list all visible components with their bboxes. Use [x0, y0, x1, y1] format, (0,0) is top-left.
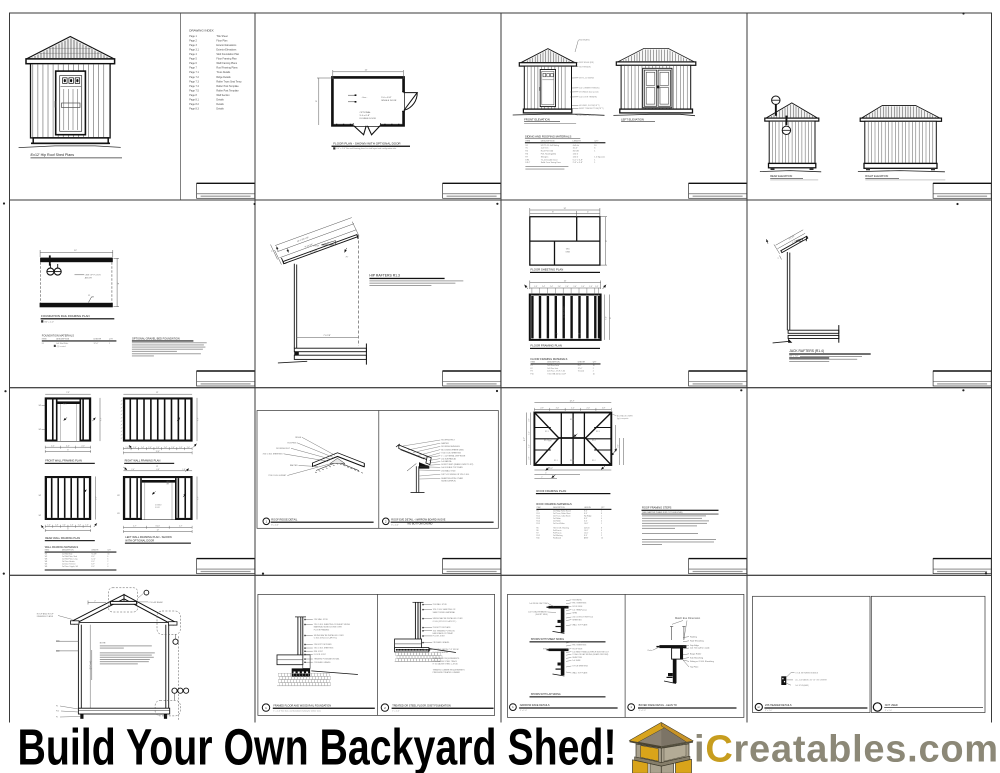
svg-text:DESCRIPTION: DESCRIPTION [62, 550, 74, 552]
svg-text:Page 8.1: Page 8.1 [189, 99, 199, 102]
svg-text:1'-5": 1'-5" [528, 431, 530, 434]
svg-text:2'-9": 2'-9" [540, 408, 544, 410]
svg-text:EXISTING EARTH 2"-8" FROM: EXISTING EARTH 2"-8" FROM [433, 648, 459, 651]
svg-text:REAR WALL FRAMING PLAN: REAR WALL FRAMING PLAN [45, 536, 80, 540]
svg-text:RIDGE(R8): RIDGE(R8) [572, 600, 582, 602]
svg-text:NOTE:: NOTE: [100, 643, 107, 645]
svg-text:1'-4": 1'-4" [126, 447, 130, 449]
svg-text:1'-4": 1'-4" [78, 525, 82, 527]
svg-text:ITEM: ITEM [536, 507, 541, 509]
svg-text:Exterior Elevations: Exterior Elevations [216, 48, 237, 51]
svg-text:2X4 WALL STUD: 2X4 WALL STUD [314, 618, 329, 621]
svg-text:7/16 TREATED PLYWOOD: 7/16 TREATED PLYWOOD [433, 629, 456, 632]
svg-text:1x4 DOOR TRIM(T8): 1x4 DOOR TRIM(T8) [579, 97, 597, 99]
svg-text:2'-0": 2'-0" [81, 445, 85, 447]
svg-text:3'-5 1/2": 3'-5 1/2" [788, 235, 795, 240]
svg-text:Page 7.3: Page 7.3 [189, 80, 199, 83]
svg-text:2x6 Rafter: 2x6 Rafter [553, 517, 561, 520]
svg-text:SOFFIT VENT (WHEN DOWN TO FIT): SOFFIT VENT (WHEN DOWN TO FIT) [441, 464, 473, 466]
svg-text:1x4 SHIM: 1x4 SHIM [572, 660, 580, 662]
svg-text:Shingles: Shingles [541, 156, 549, 158]
svg-text:Exterior Elevations: Exterior Elevations [216, 44, 237, 47]
svg-text:T5: T5 [525, 148, 528, 150]
svg-text:2'-7": 2'-7" [179, 526, 183, 528]
svg-text:Page 6: Page 6 [189, 62, 197, 65]
svg-text:2'-4": 2'-4" [131, 469, 135, 471]
svg-text:8'-7": 8'-7" [524, 437, 526, 441]
svg-text:1.5 Squares: 1.5 Squares [594, 156, 605, 158]
svg-text:7'-9": 7'-9" [66, 392, 70, 394]
svg-text:FLOOR PLAN - SHOWN WITH OPTION: FLOOR PLAN - SHOWN WITH OPTIONAL DOOR [333, 141, 401, 145]
svg-text:Roof Framing Plans: Roof Framing Plans [216, 67, 238, 70]
svg-text:1x4 RIDGE CAP TRIM: 1x4 RIDGE CAP TRIM [529, 602, 548, 605]
svg-text:QTY: QTY [594, 140, 599, 142]
svg-text:75°: 75° [346, 257, 349, 259]
svg-text:RIDGE(R8): RIDGE(R8) [572, 642, 582, 644]
svg-text:2x4 SUB FASCIA: 2x4 SUB FASCIA [441, 457, 456, 460]
svg-text:HIP RAFTERS R1.3: HIP RAFTERS R1.3 [369, 273, 400, 277]
svg-text:1'-4": 1'-4" [581, 286, 585, 288]
svg-text:W2: W2 [117, 495, 120, 497]
svg-text:4x8 sht: 4x8 sht [573, 144, 580, 147]
svg-text:8': 8' [610, 317, 612, 319]
svg-text:Top Plate: Top Plate [690, 666, 699, 669]
svg-text:Title Sheet: Title Sheet [216, 35, 228, 38]
svg-text:Felt Fascia: Felt Fascia [553, 529, 561, 532]
svg-text:2'-7": 2'-7" [133, 526, 137, 528]
svg-text:2'-2": 2'-2" [617, 444, 619, 447]
svg-text:1'-4": 1'-4" [542, 286, 546, 288]
svg-text:8': 8' [118, 282, 120, 284]
svg-text:1'-8": 1'-8" [182, 469, 186, 471]
svg-text:RAFTER: RAFTER [441, 442, 449, 445]
svg-text:1: 1 [512, 705, 514, 709]
svg-text:CRUSHED GRAVEL: CRUSHED GRAVEL [433, 641, 450, 644]
svg-text:3" = 1'-0": 3" = 1'-0" [520, 710, 528, 712]
svg-text:120 sf: 120 sf [573, 156, 579, 158]
svg-text:Roof Sheathing: Roof Sheathing [690, 640, 704, 643]
svg-text:GUTTER(DR): GUTTER(DR) [579, 67, 591, 69]
svg-text:2X4 WALL STUD: 2X4 WALL STUD [433, 603, 448, 606]
svg-text:O.S.B. (STUCCO LAP ETC.): O.S.B. (STUCCO LAP ETC.) [433, 620, 457, 623]
svg-text:1'-4": 1'-4" [164, 447, 168, 449]
svg-text:iCreatables.com: iCreatables.com [694, 729, 999, 771]
svg-text:1: 1 [265, 706, 267, 710]
svg-text:Roofing: Roofing [690, 636, 697, 638]
svg-text:Floor Framing Plan: Floor Framing Plan [216, 58, 237, 61]
svg-text:4'-0": 4'-0" [66, 445, 70, 447]
svg-text:Solid Core Swing Door: Solid Core Swing Door [541, 162, 562, 164]
svg-text:Truss Details: Truss Details [216, 71, 231, 74]
svg-text:HOLDER, DOOR(S 8"T): HOLDER, DOOR(S 8"T) [579, 105, 600, 107]
svg-text:TREATED OR STEEL FLOOR JOIST F: TREATED OR STEEL FLOOR JOIST FOUNDATION [392, 704, 451, 707]
svg-text:FLOOR FRAMING: FLOOR FRAMING [433, 651, 449, 654]
svg-text:120 sf: 120 sf [573, 154, 579, 156]
svg-text:1: 1 [594, 159, 596, 161]
svg-text:2x4 Door Trimmer: 2x4 Door Trimmer [62, 563, 76, 566]
svg-text:SKIRT TRIM BOTTOM(T8"T): SKIRT TRIM BOTTOM(T8"T) [579, 108, 604, 110]
svg-text:F1: F1 [42, 343, 44, 345]
svg-text:F1: F1 [88, 295, 90, 297]
svg-text:FOUNDATION RAIL FRAMING PLAN: FOUNDATION RAIL FRAMING PLAN [41, 314, 90, 318]
svg-text:S1: S1 [525, 145, 528, 147]
svg-text:1': 1' [778, 258, 780, 260]
svg-text:PRESSURE TREATED LUMBER: PRESSURE TREATED LUMBER [433, 671, 461, 674]
svg-text:2x6 Door Header: 2x6 Door Header [62, 560, 75, 563]
svg-text:Details: Details [216, 99, 224, 102]
svg-text:1'-4": 1'-4" [156, 447, 160, 449]
svg-text:6: 6 [594, 148, 596, 150]
svg-text:FLOOR FRAMING PLAN: FLOOR FRAMING PLAN [531, 344, 562, 348]
svg-text:SHIM: SHIM [543, 649, 548, 651]
svg-text:2'-2": 2'-2" [571, 408, 575, 410]
svg-text:(2) treated: (2) treated [57, 345, 66, 348]
svg-text:1'-4": 1'-4" [148, 447, 152, 449]
svg-text:ROOF FRAMING STEPS: ROOF FRAMING STEPS [642, 506, 672, 510]
svg-text:2x6 Floor Joist: 2x6 Floor Joist [547, 364, 559, 367]
svg-text:SHIM TRIM: SHIM TRIM [572, 657, 582, 659]
svg-text:7/16 O.S.B. Sheeting: 7/16 O.S.B. Sheeting [553, 526, 569, 529]
svg-text:ROOF FRAMING MATERIALS: ROOF FRAMING MATERIALS [536, 502, 572, 506]
svg-text:1x4 TRIM(Fascia): 1x4 TRIM(Fascia) [572, 609, 587, 611]
svg-text:FLOOR FRAMING: FLOOR FRAMING [314, 628, 330, 631]
svg-text:Page 7.4: Page 7.4 [189, 85, 199, 88]
svg-text:1'-4": 1'-4" [70, 525, 74, 527]
svg-text:NARROW RAKE DETAILS: NARROW RAKE DETAILS [520, 704, 550, 707]
svg-text:4x6 Foun. 4 S.R. T-60: 4x6 Foun. 4 S.R. T-60 [547, 371, 565, 373]
svg-text:4': 4' [587, 211, 589, 213]
svg-text:12': 12' [365, 70, 368, 72]
svg-text:REAR ELEVATION: REAR ELEVATION [770, 174, 792, 178]
svg-text:1x4 TO4 ALTERNATING: 1x4 TO4 ALTERNATING [528, 610, 548, 613]
svg-text:W2: W2 [39, 405, 42, 407]
svg-text:RIDGE(4R5): RIDGE(4R5) [579, 40, 590, 42]
svg-text:ROOF RIDGE DETAIL: ROOF RIDGE DETAIL [271, 518, 298, 522]
svg-text:1'-4": 1'-4" [595, 286, 599, 288]
svg-text:LENGTH: LENGTH [94, 339, 102, 341]
svg-text:FRONT ELEVATION: FRONT ELEVATION [524, 118, 550, 122]
svg-text:2X4 BOTTOM PLATE: 2X4 BOTTOM PLATE [314, 643, 333, 646]
svg-text:F2: F2 [56, 706, 58, 708]
svg-text:DESCRIPTION: DESCRIPTION [56, 339, 70, 341]
svg-text:OPTIONAL: OPTIONAL [360, 111, 372, 114]
svg-text:4x8 sht: 4x8 sht [584, 526, 590, 529]
svg-text:DESCRIPTION: DESCRIPTION [553, 507, 565, 509]
svg-text:1" = 1'-0": 1" = 1'-0" [392, 710, 400, 712]
svg-text:MATERIAL SIDING DOWN OVER: MATERIAL SIDING DOWN OVER [314, 626, 343, 629]
svg-text:QTY: QTY [107, 550, 111, 552]
svg-text:7/16 O.S.B. SHEETING: 7/16 O.S.B. SHEETING [263, 453, 283, 455]
svg-text:3: 3 [336, 242, 337, 244]
svg-text:36"x36': 36"x36' [573, 151, 580, 153]
svg-text:SIDING AND ROOFING MATERIALS: SIDING AND ROOFING MATERIALS [525, 134, 572, 138]
svg-text:12: 12 [327, 243, 329, 245]
svg-text:Page 7: Page 7 [189, 67, 197, 70]
svg-text:2x6 Jack Rafter: 2x6 Jack Rafter [553, 522, 565, 525]
svg-text:ROOF SIDE: ROOF SIDE [572, 606, 583, 608]
svg-text:F10: F10 [56, 711, 59, 713]
svg-text:Ridge Details: Ridge Details [216, 76, 231, 79]
svg-text:12' RIM JOIST: 12' RIM JOIST [564, 305, 566, 318]
svg-text:2X4 BOTTOM PLATE: 2X4 BOTTOM PLATE [433, 626, 452, 629]
svg-text:4': 4' [545, 473, 547, 475]
svg-text:Page 2: Page 2 [189, 39, 197, 42]
svg-text:7/16 O.S.B. SHEETING: 7/16 O.S.B. SHEETING [314, 648, 334, 650]
svg-text:12': 12' [74, 250, 77, 252]
svg-text:2: 2 [385, 519, 387, 523]
svg-text:QTY: QTY [601, 507, 605, 509]
svg-text:12'-0": 12'-0" [578, 368, 583, 370]
svg-text:5'-0" x 6'-8": 5'-0" x 6'-8" [573, 159, 583, 161]
svg-text:W1: W1 [117, 513, 120, 515]
svg-text:W1: W1 [39, 429, 42, 431]
svg-text:Roof Felt 15lb: Roof Felt 15lb [541, 150, 554, 153]
svg-text:2X6 HEADER DETAILS: 2X6 HEADER DETAILS [765, 704, 792, 707]
svg-text:1'-4": 1'-4" [187, 447, 191, 449]
svg-text:TREATED LUMBER REQUIREMENTS: TREATED LUMBER REQUIREMENTS [433, 669, 466, 672]
svg-text:1: 1 [594, 162, 596, 164]
svg-text:FOUNDATION MATERIALS: FOUNDATION MATERIALS [42, 333, 74, 337]
svg-text:WITH OPTIONAL DOOR: WITH OPTIONAL DOOR [125, 538, 154, 542]
svg-text:R1.4: R1.4 [592, 440, 596, 442]
svg-text:Page 8: Page 8 [189, 94, 197, 97]
svg-text:1'-4": 1'-4" [558, 286, 562, 288]
svg-text:3/4" = 1'-0": 3/4" = 1'-0" [789, 356, 799, 358]
svg-text:WALL TOP PLATE: WALL TOP PLATE [572, 672, 588, 675]
svg-text:ROOFING FELT: ROOFING FELT [441, 440, 455, 442]
svg-text:8'-0": 8'-0" [578, 365, 582, 367]
svg-text:2'-9": 2'-9" [528, 418, 530, 421]
svg-text:BOXED RAKE DETAIL - LEAN TO: BOXED RAKE DETAIL - LEAN TO [639, 704, 677, 707]
svg-text:2x4 DOUBLE TOP PLATE: 2x4 DOUBLE TOP PLATE [441, 466, 463, 469]
svg-text:1'-4": 1'-4" [589, 286, 593, 288]
svg-text:Rafter Post Template: Rafter Post Template [216, 85, 239, 88]
svg-text:Sub Sheathing: Sub Sheathing [690, 656, 703, 659]
svg-text:12'-7": 12'-7" [570, 401, 575, 403]
svg-text:DOUBLE DOOR: DOUBLE DOOR [360, 118, 377, 120]
svg-text:Felt, Roofing(felt): Felt, Roofing(felt) [541, 153, 557, 156]
svg-text:2x4 Door Cripple, Sill: 2x4 Door Cripple, Sill [62, 565, 78, 568]
svg-text:ABOVE: ABOVE [85, 276, 93, 279]
svg-text:1: 1 [266, 519, 268, 523]
svg-text:FLOOR SHEETING PLAN: FLOOR SHEETING PLAN [531, 268, 564, 272]
svg-text:Page 7.1: Page 7.1 [189, 71, 199, 74]
svg-text:W1: W1 [39, 515, 42, 517]
svg-text:LINE OF FLOOR: LINE OF FLOOR [85, 275, 101, 277]
svg-text:WALL FRAMING MATERIALS: WALL FRAMING MATERIALS [45, 546, 79, 549]
svg-text:GROUND LEVEL: GROUND LEVEL [579, 115, 594, 117]
svg-text:2'-0": 2'-0" [556, 408, 560, 410]
svg-text:R1.5: R1.5 [536, 523, 540, 525]
svg-text:Rake: Rake [648, 650, 652, 652]
svg-text:5/8 T1-11 SIDING OR 7/16 O.S.B: 5/8 T1-11 SIDING OR 7/16 O.S.B. [441, 474, 469, 476]
svg-text:Build Your Own Backyard Shed!: Build Your Own Backyard Shed! [18, 719, 617, 773]
svg-text:1'-4": 1'-4" [85, 525, 89, 527]
svg-text:5/8 T1-11 SIDING: 5/8 T1-11 SIDING [579, 78, 594, 80]
svg-text:CRUSHED GRAVEL: CRUSHED GRAVEL [314, 661, 331, 664]
svg-text:Hardboard: Hardboard [553, 537, 561, 540]
svg-text:1'-4": 1'-4" [62, 525, 66, 527]
svg-text:2'-9": 2'-9" [528, 456, 530, 459]
svg-text:ITEM: ITEM [45, 550, 50, 552]
svg-text:ROOF SIDE: ROOF SIDE [572, 648, 583, 650]
svg-text:2'-0": 2'-0" [51, 445, 55, 447]
svg-text:Details: Details [216, 108, 224, 111]
svg-text:W2: W2 [39, 495, 42, 497]
svg-text:R1.2: R1.2 [570, 419, 574, 421]
svg-text:1x6 FASCIA: 1x6 FASCIA [441, 460, 452, 463]
svg-text:ASST: ASST [584, 537, 588, 540]
svg-text:~floor~: ~floor~ [361, 97, 368, 99]
svg-text:Page 7.5: Page 7.5 [189, 89, 199, 92]
svg-text:7/16 OSB 4x8 4.0 CLIP: 7/16 OSB 4x8 4.0 CLIP [547, 373, 566, 375]
svg-text:T1-11 Double Door: T1-11 Double Door [541, 159, 558, 161]
svg-text:1x4 Trim: 1x4 Trim [541, 148, 549, 150]
svg-text:Wall Framing Plans: Wall Framing Plans [216, 62, 237, 65]
svg-text:F3: F3 [531, 371, 533, 373]
svg-text:2: 2 [384, 706, 386, 710]
svg-text:1'-4": 1'-4" [47, 525, 51, 527]
svg-text:10: 10 [593, 373, 595, 375]
svg-text:7'-7": 7'-7" [101, 417, 103, 421]
svg-text:Felt Fascia: Felt Fascia [553, 531, 561, 534]
svg-text:SHOWN WITH LAP SIDING: SHOWN WITH LAP SIDING [531, 693, 561, 696]
svg-text:3" = 1'-0": 3" = 1'-0" [391, 524, 399, 526]
svg-text:1x4 CORNER TRIM(T5): 1x4 CORNER TRIM(T5) [579, 88, 600, 90]
svg-text:Page 3: Page 3 [189, 44, 197, 47]
svg-text:Page 8.3: Page 8.3 [189, 108, 199, 111]
svg-text:1/4" = 1'-0" See wall framing: 1/4" = 1'-0" See wall framing plans for … [336, 147, 396, 150]
svg-text:Match Eve Dimension: Match Eve Dimension [675, 616, 701, 620]
svg-text:Page 3.1: Page 3.1 [189, 48, 199, 51]
svg-text:FELT SHEETING: FELT SHEETING [572, 645, 587, 647]
svg-text:F1: F1 [531, 365, 533, 367]
svg-text:JACK RAFTERS (R1.4): JACK RAFTERS (R1.4) [789, 349, 824, 353]
svg-text:3" = 1'-0": 3" = 1'-0" [765, 710, 773, 712]
svg-text:R6: R6 [525, 154, 528, 156]
svg-text:F2: F2 [578, 334, 580, 336]
svg-text:FRONT WALL FRAMING PLAN: FRONT WALL FRAMING PLAN [45, 459, 82, 463]
svg-text:ITEM: ITEM [42, 339, 47, 341]
svg-text:2: 2 [593, 371, 594, 373]
svg-text:1'-4": 1'-4" [179, 447, 183, 449]
svg-text:RIGHT ELEVATION: RIGHT ELEVATION [865, 174, 888, 178]
svg-text:SHOWN WITH SHEET SIDING: SHOWN WITH SHEET SIDING [531, 638, 565, 641]
svg-text:2'-8" x 6'-8": 2'-8" x 6'-8" [573, 162, 583, 164]
svg-text:(6'-7" wall): (6'-7" wall) [90, 660, 92, 669]
svg-text:7'-7": 7'-7" [96, 496, 98, 500]
svg-text:2'-9": 2'-9" [602, 408, 606, 410]
svg-text:Details: Details [216, 103, 224, 106]
svg-text:5'-0 x 6'-8": 5'-0 x 6'-8" [360, 115, 370, 117]
svg-text:R1.1: R1.1 [570, 460, 574, 462]
svg-text:FLOOR JOIST: FLOOR JOIST [314, 654, 327, 656]
svg-text:TO ALLOW LAP SIDING (BOARD PER: TO ALLOW LAP SIDING (BOARD PER RIM) [572, 653, 608, 656]
svg-text:SIDING (SHIP-R): SIDING (SHIP-R) [441, 481, 456, 483]
svg-text:QTY: QTY [109, 339, 114, 341]
svg-text:Skid Foundation Plan: Skid Foundation Plan [216, 53, 239, 56]
svg-text:ROOF AND ROOF: ROOF AND ROOF [37, 612, 55, 615]
svg-text:SIDING MAY BE INSTALLED OVER: SIDING MAY BE INSTALLED OVER [314, 634, 344, 637]
svg-text:ROOFING: ROOFING [287, 442, 296, 444]
svg-text:12'-0": 12'-0" [94, 343, 99, 345]
svg-text:12: 12 [798, 239, 800, 241]
svg-text:2X4 WALL STUD: 2X4 WALL STUD [441, 469, 456, 472]
svg-text:4: 4 [107, 566, 108, 568]
svg-text:2x4 Wall Plate, Stud: 2x4 Wall Plate, Stud [62, 555, 77, 558]
svg-text:10: 10 [594, 145, 597, 147]
svg-text:LENGTH: LENGTH [578, 362, 586, 364]
svg-text:2x6 Rim Joist: 2x6 Rim Joist [547, 367, 558, 370]
svg-text:ITEM: ITEM [525, 140, 530, 142]
svg-text:LENGTH: LENGTH [573, 140, 582, 142]
svg-text:R1.2: R1.2 [592, 460, 596, 462]
svg-text:STYLE SHEETING: STYLE SHEETING [572, 666, 588, 668]
svg-text:(typ) composite: (typ) composite [617, 417, 629, 420]
svg-text:Page 5: Page 5 [189, 58, 197, 61]
svg-text:3" = 1'-0": 3" = 1'-0" [271, 524, 279, 526]
svg-text:F10: F10 [531, 373, 534, 375]
svg-text:SIDING MAY BE INSTALLED OVER: SIDING MAY BE INSTALLED OVER [433, 617, 463, 620]
svg-text:2'-0": 2'-0" [587, 408, 591, 410]
svg-text:8'x12' Hip Roof Shed Plans: 8'x12' Hip Roof Shed Plans [31, 153, 75, 157]
svg-text:2x6 Truss, Rafter Short: 2x6 Truss, Rafter Short [553, 512, 571, 515]
svg-text:1: 1 [601, 523, 602, 525]
svg-text:SHIM: SHIM [572, 613, 577, 615]
svg-text:SHEETING: SHEETING [572, 619, 582, 621]
svg-text:RIDGE: RIDGE [295, 437, 302, 439]
svg-text:W9: W9 [167, 483, 170, 485]
svg-text:9'-10 3/4": 9'-10 3/4" [305, 244, 314, 249]
svg-text:DR1: DR1 [525, 159, 530, 161]
svg-text:7'-9 7/8": 7'-9 7/8" [323, 335, 331, 337]
svg-text:LENGTH: LENGTH [91, 550, 99, 552]
svg-text:OSB: OSB [565, 251, 570, 253]
svg-text:9'-5 1/2": 9'-5 1/2" [310, 250, 318, 254]
svg-text:(2) - 2x6 NAILED 4/5" 16" ON C: (2) - 2x6 NAILED 4/5" 16" ON CENTER [795, 679, 827, 682]
svg-text:3" = 1'-0": 3" = 1'-0" [639, 710, 647, 712]
svg-text:WALL TOP PLATE: WALL TOP PLATE [572, 624, 588, 627]
svg-text:O.S.B. BETWEEN BOARDS: O.S.B. BETWEEN BOARDS [795, 671, 819, 674]
svg-text:1" x 1/2" METAL DRIP EDGE: 1" x 1/2" METAL DRIP EDGE [441, 454, 466, 457]
svg-text:R1.3: R1.3 [545, 431, 549, 433]
svg-text:11'-8": 11'-8" [156, 451, 161, 453]
svg-text:Rafter Truss Seat Temp: Rafter Truss Seat Temp [216, 80, 242, 83]
svg-text:10: 10 [593, 365, 595, 367]
svg-text:10: 10 [601, 538, 603, 540]
svg-text:PITCH: PITCH [314, 245, 320, 247]
svg-text:2x4 STUD(MAX): 2x4 STUD(MAX) [795, 684, 809, 687]
svg-text:1x4 Trim (all for used): 1x4 Trim (all for used) [690, 648, 710, 650]
svg-text:2x6 Rafter: 2x6 Rafter [553, 520, 561, 523]
svg-text:1'-4": 1'-4" [133, 447, 137, 449]
svg-text:Page 4: Page 4 [189, 53, 197, 56]
svg-text:DRIP EDGE (R8): DRIP EDGE (R8) [579, 62, 594, 64]
svg-text:5'-0 x 6'-8": 5'-0 x 6'-8" [381, 97, 391, 99]
svg-text:2x4 Wall Plate, Long: 2x4 Wall Plate, Long [62, 557, 77, 560]
svg-text:1'-4": 1'-4" [566, 286, 570, 288]
svg-text:FAS BOARD OR TREAT: FAS BOARD OR TREAT [433, 632, 454, 635]
svg-text:FLOOR JOIST: FLOOR JOIST [433, 636, 446, 638]
svg-text:1'-4": 1'-4" [534, 286, 538, 288]
svg-text:2x4 Wall Stud: 2x4 Wall Stud [62, 552, 72, 555]
svg-text:2': 2' [541, 477, 543, 479]
svg-text:LEFT ELEVATION: LEFT ELEVATION [621, 118, 644, 122]
svg-text:3" = 1'-0": 3" = 1'-0" [885, 710, 893, 712]
svg-text:2x6 Ridge Rafter Board: 2x6 Ridge Rafter Board [553, 509, 571, 512]
svg-text:7/16 O.S.B. GUSSET: 7/16 O.S.B. GUSSET [268, 475, 287, 477]
svg-text:2': 2' [94, 601, 96, 603]
